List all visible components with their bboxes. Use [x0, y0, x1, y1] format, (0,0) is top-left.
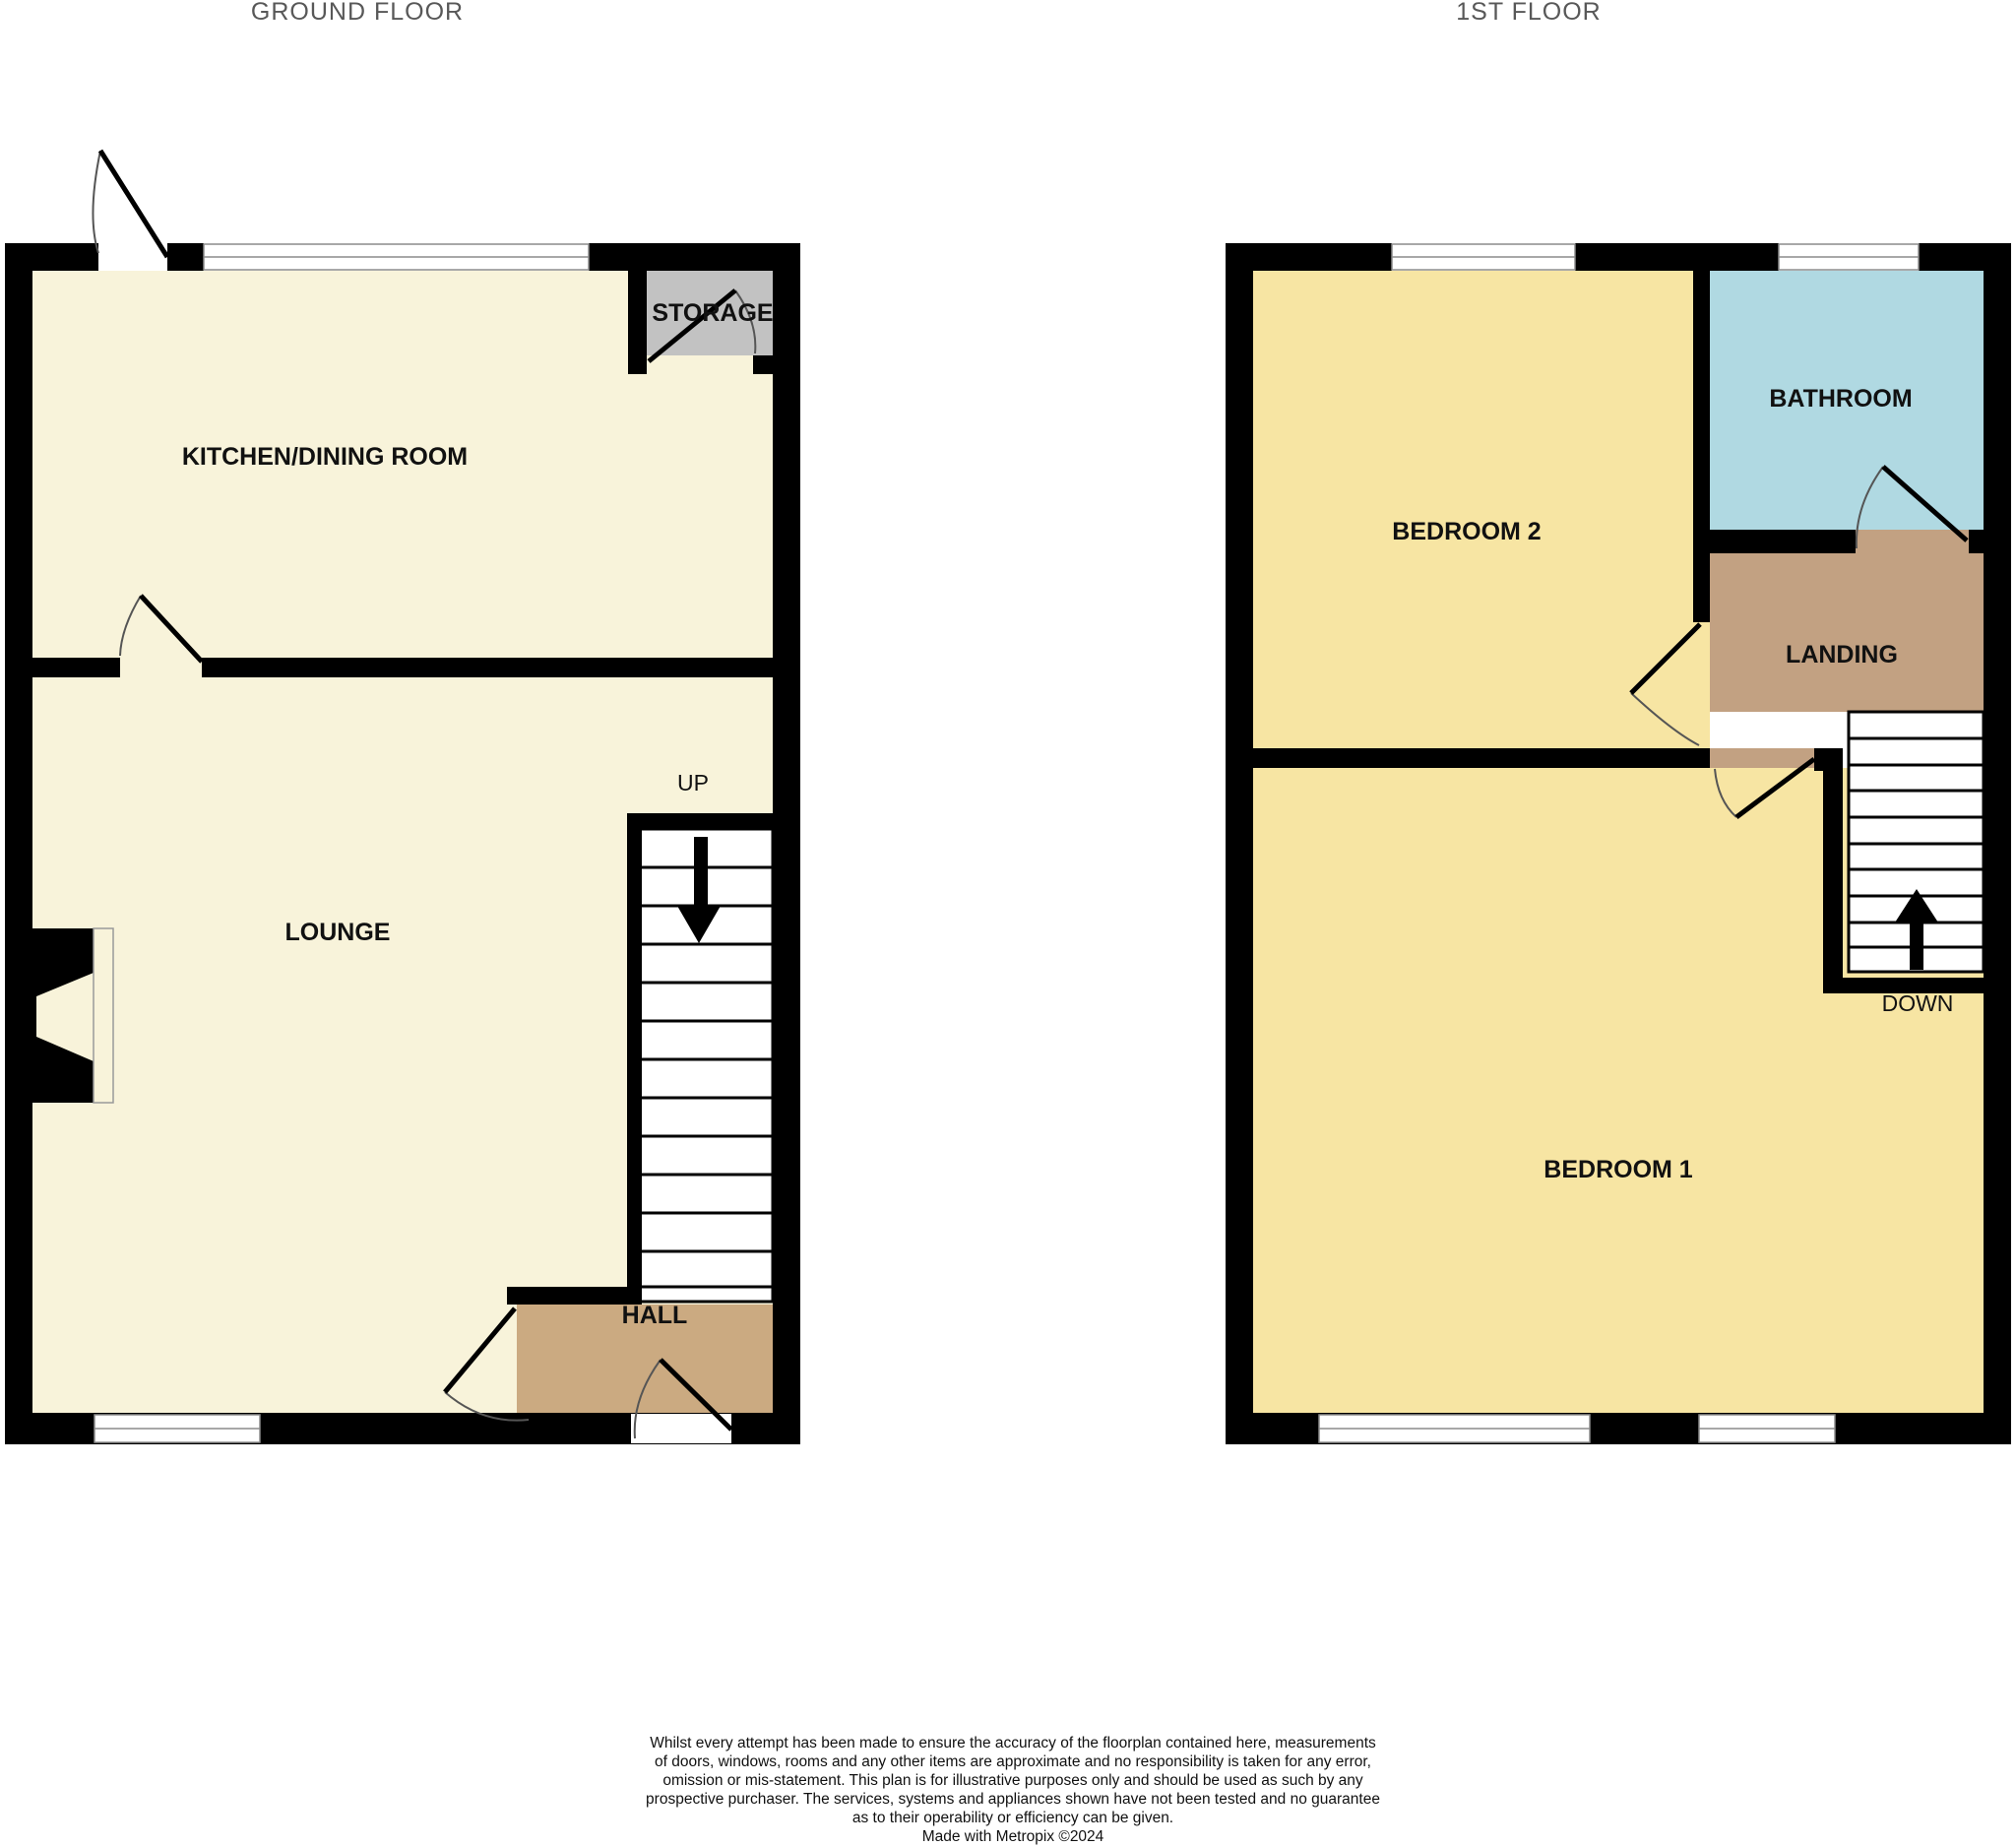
wall-top-right: [589, 243, 800, 271]
kitchen-lounge-wall-right: [202, 658, 773, 677]
bedroom2-bathroom-wall: [1693, 271, 1710, 530]
bedroom2-door-gap: [1691, 622, 1710, 748]
first-staircase: [1823, 712, 2011, 993]
wall-top-mid-first: [1575, 243, 1779, 271]
kitchen-lounge-wall-left: [32, 658, 120, 677]
bedroom1-door-jamb: [1814, 748, 1843, 771]
disclaimer-line: Whilst every attempt has been made to en…: [650, 1735, 1376, 1751]
wall-right: [773, 243, 800, 1444]
wall-left: [5, 243, 32, 1444]
back-door-arc: [93, 151, 100, 253]
bedroom2-label: BEDROOM 2: [1392, 518, 1541, 545]
disclaimer-line: of doors, windows, rooms and any other i…: [655, 1753, 1371, 1770]
hall-label: HALL: [622, 1302, 688, 1329]
floorplan-page: KITCHEN/DINING ROOM STORAGE LOUNGE HALL …: [0, 0, 2016, 1847]
bedroom2-room: [1253, 271, 1693, 748]
stair-top-wall: [627, 813, 773, 829]
first-floor-plan: BEDROOM 2 BATHROOM LANDING BEDROOM 1 DOW…: [1226, 243, 2011, 1444]
down-label: DOWN: [1882, 990, 1954, 1016]
disclaimer-block: Whilst every attempt has been made to en…: [646, 1735, 1380, 1845]
metropix-credit: Made with Metropix ©2024: [922, 1828, 1104, 1845]
wall-right-first: [1984, 243, 2011, 1444]
storage-left-wall: [628, 271, 647, 369]
bedroom1-label: BEDROOM 1: [1543, 1156, 1693, 1183]
first-floor-title: 1ST FLOOR: [1456, 0, 1601, 26]
hall-top-wall: [507, 1287, 627, 1305]
ground-staircase: [627, 813, 773, 1305]
landing-label: LANDING: [1786, 641, 1898, 669]
back-door-leaf: [100, 151, 167, 257]
wall-top-pier: [167, 243, 204, 271]
ground-floor-title: GROUND FLOOR: [251, 0, 464, 26]
up-label: UP: [677, 770, 709, 796]
disclaimer-line: as to their operability or efficiency ca…: [852, 1810, 1173, 1826]
stair-side-wall: [627, 829, 642, 1305]
disclaimer-line: omission or mis-statement. This plan is …: [662, 1772, 1363, 1789]
bedroom1-door-gap: [1710, 748, 1814, 768]
plan-titles: GROUND FLOOR 1ST FLOOR: [251, 0, 1602, 26]
bedroom-divider-wall: [1253, 748, 1710, 768]
front-door-opening: [631, 1414, 731, 1443]
storage-bottom-right-stub: [753, 355, 773, 374]
stair-side-wall-first: [1823, 771, 1843, 991]
storage-bottom-left-stub: [628, 355, 647, 374]
bedroom2-landing-wall: [1693, 553, 1710, 622]
disclaimer-line: prospective purchaser. The services, sys…: [646, 1791, 1380, 1808]
storage-label: STORAGE: [652, 299, 773, 327]
ground-floor-plan: KITCHEN/DINING ROOM STORAGE LOUNGE HALL …: [5, 151, 800, 1444]
kitchen-label: KITCHEN/DINING ROOM: [182, 443, 468, 471]
landing-room: [1710, 553, 1984, 712]
bathroom-door-jamb: [1969, 530, 1984, 553]
bathroom-label: BATHROOM: [1769, 385, 1912, 413]
bathroom-bottom-wall: [1693, 530, 1856, 553]
floorplan-svg: KITCHEN/DINING ROOM STORAGE LOUNGE HALL …: [0, 0, 2016, 1847]
bathroom-door-gap: [1856, 530, 1969, 553]
lounge-label: LOUNGE: [285, 919, 391, 946]
wall-left-first: [1226, 243, 1253, 1444]
